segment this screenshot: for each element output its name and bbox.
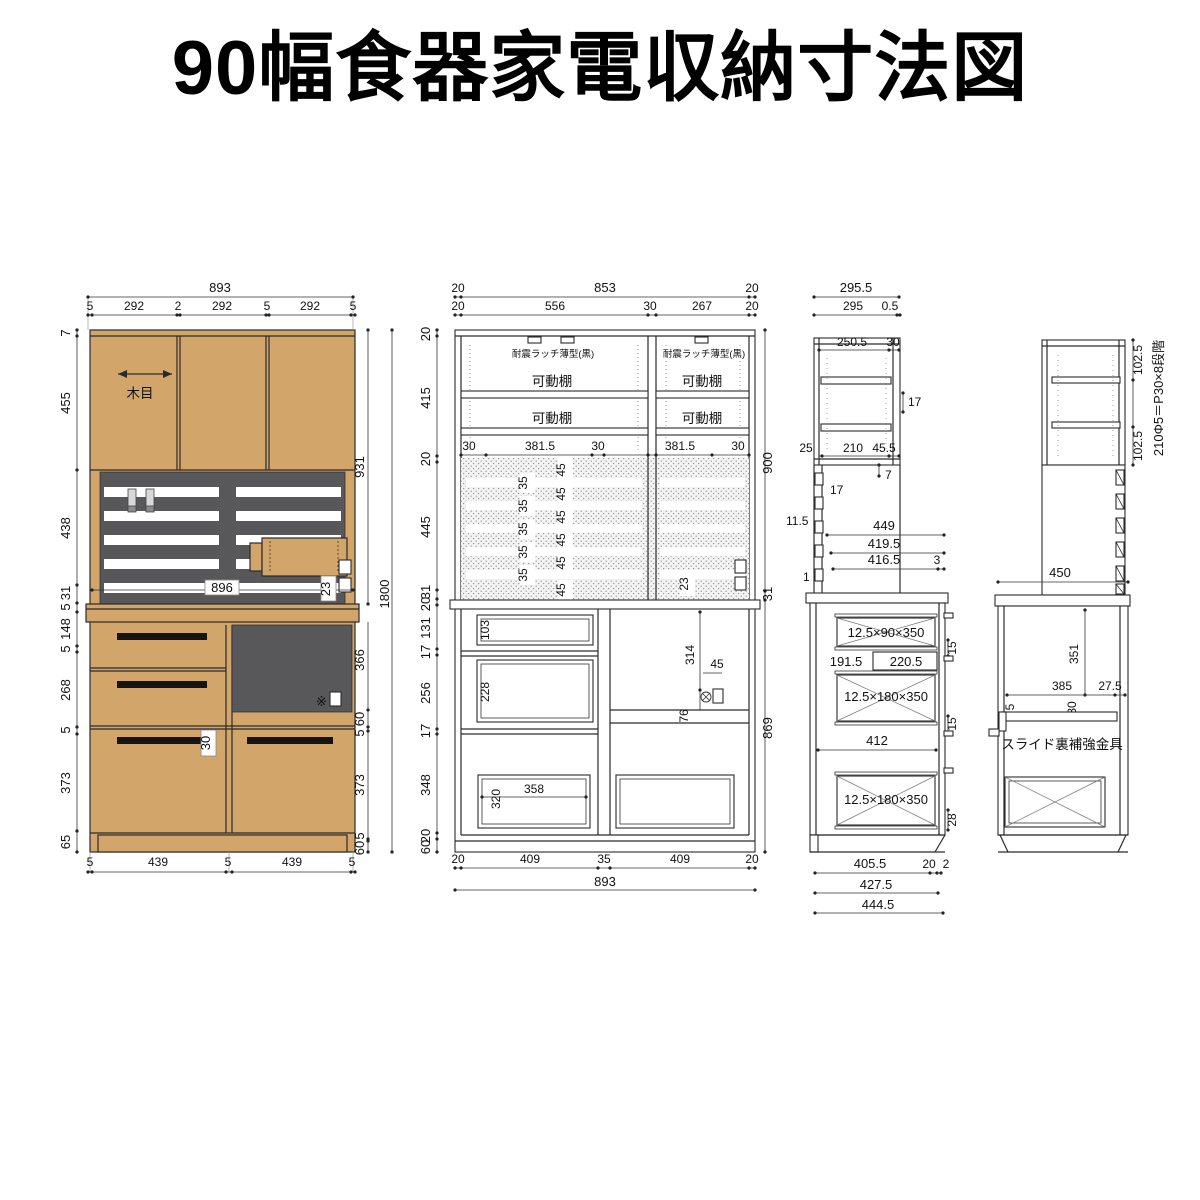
dim-label: 20 bbox=[451, 281, 465, 295]
dim-label: 295.5 bbox=[840, 280, 873, 295]
dim-label: 45 bbox=[554, 583, 568, 597]
dim-label: 292 bbox=[300, 299, 320, 313]
slide-rail bbox=[1000, 712, 1117, 721]
dim-label: 45 bbox=[554, 556, 568, 570]
latch bbox=[695, 337, 708, 343]
latch bbox=[561, 337, 574, 343]
rail-hook bbox=[999, 712, 1006, 731]
dim-label: 385 bbox=[1052, 679, 1072, 693]
adjustable-shelf bbox=[656, 391, 749, 398]
dim-label: 131 bbox=[418, 617, 433, 639]
dim-label: 228 bbox=[478, 682, 492, 702]
sliding-tray-tab bbox=[250, 543, 262, 571]
dim-label: 20 bbox=[418, 452, 433, 466]
dim-label: 931 bbox=[352, 456, 367, 478]
dim-label: 25 bbox=[799, 441, 813, 455]
dim-label: 102.5 bbox=[1131, 345, 1145, 375]
dim-label: 5 bbox=[352, 729, 367, 736]
dim-label: 20 bbox=[745, 281, 759, 295]
dim-label: 17 bbox=[418, 724, 433, 738]
dim-label: 5 bbox=[350, 299, 357, 313]
dim-label: 373 bbox=[58, 772, 73, 794]
dim-label: 381.5 bbox=[525, 439, 555, 453]
sliding-tray bbox=[262, 538, 347, 576]
drawer-size-label: 12.5×180×350 bbox=[844, 689, 928, 704]
dim-label: 23 bbox=[677, 577, 691, 591]
dim-label: 5 bbox=[349, 855, 356, 869]
dim-label: 27.5 bbox=[1098, 679, 1122, 693]
shelf bbox=[821, 424, 891, 431]
hinge bbox=[815, 497, 823, 509]
dim-label: 416.5 bbox=[868, 552, 901, 567]
outlet bbox=[330, 692, 341, 706]
shelf bbox=[1052, 377, 1120, 383]
dim-label: 23 bbox=[318, 582, 333, 596]
dim-label: 30 bbox=[462, 439, 476, 453]
dim-label: 896 bbox=[211, 580, 233, 595]
dim-label: 5 bbox=[352, 832, 367, 839]
dim-label: 45 bbox=[554, 510, 568, 524]
dim-label: 35 bbox=[516, 568, 530, 582]
dim-label: 35 bbox=[516, 545, 530, 559]
drawer-size-label: 12.5×180×350 bbox=[844, 792, 928, 807]
dim-label: 438 bbox=[58, 517, 73, 539]
latch bbox=[528, 337, 541, 343]
dim-label: 439 bbox=[148, 855, 168, 869]
dim-label: 314 bbox=[683, 645, 697, 665]
outlet bbox=[339, 560, 351, 574]
hinge bbox=[815, 521, 823, 533]
dim-label: 148 bbox=[58, 618, 73, 640]
dim-label: 5 bbox=[264, 299, 271, 313]
dim-label: 20 bbox=[418, 597, 433, 611]
dim-label: 17 bbox=[418, 645, 433, 659]
dim-label: 30 bbox=[731, 439, 745, 453]
dim-label: 893 bbox=[209, 280, 231, 295]
dim-label: 20 bbox=[745, 852, 759, 866]
shelf-label: 可動棚 bbox=[532, 411, 573, 426]
dim-label: 250.5 bbox=[837, 335, 867, 349]
dim-label: 427.5 bbox=[860, 877, 893, 892]
dim-label: 191.5 bbox=[830, 654, 863, 669]
wood-grain-label: 木目 bbox=[127, 386, 154, 401]
dim-label: 295 bbox=[843, 299, 863, 313]
dim-label: 31 bbox=[58, 586, 73, 600]
shelf bbox=[821, 377, 891, 384]
dim-label: 5 bbox=[87, 299, 94, 313]
dim-label: 853 bbox=[594, 280, 616, 295]
dim-label: 220.5 bbox=[890, 654, 923, 669]
dim-label: 20 bbox=[451, 299, 465, 313]
handle-profile bbox=[944, 613, 953, 618]
dim-label: 45 bbox=[554, 533, 568, 547]
dim-label: 45 bbox=[710, 657, 724, 671]
dim-label: 893 bbox=[594, 874, 616, 889]
dim-label: 409 bbox=[670, 852, 690, 866]
dim-label: 419.5 bbox=[868, 536, 901, 551]
dim-label: 5 bbox=[87, 855, 94, 869]
dim-label: 381.5 bbox=[665, 439, 695, 453]
dim-label: 20 bbox=[922, 857, 936, 871]
outlet bbox=[713, 689, 723, 703]
asterisk-mark: ※ bbox=[316, 694, 327, 709]
dim-label: 292 bbox=[212, 299, 232, 313]
dim-label: 351 bbox=[1067, 644, 1081, 664]
dim-label: 45.5 bbox=[872, 441, 896, 455]
dim-label: 292 bbox=[124, 299, 144, 313]
dim-label: 7 bbox=[885, 468, 892, 482]
dim-label: 412 bbox=[866, 733, 888, 748]
dim-label: 556 bbox=[545, 299, 565, 313]
base-board bbox=[98, 835, 347, 852]
handle-profile bbox=[944, 768, 953, 773]
handle-profile bbox=[944, 656, 953, 661]
dim-label: 455 bbox=[58, 392, 73, 414]
dim-label: 445 bbox=[418, 516, 433, 538]
outlet bbox=[735, 577, 746, 590]
bracket-tab bbox=[989, 729, 999, 736]
drawer-handle bbox=[117, 681, 207, 688]
hinge bbox=[815, 569, 823, 581]
dim-label: 2 bbox=[175, 299, 182, 313]
dim-label: 31 bbox=[760, 587, 775, 601]
bracket-label: スライド裏補強金具 bbox=[1001, 737, 1123, 752]
dim-label: 439 bbox=[282, 855, 302, 869]
dim-label: 268 bbox=[58, 679, 73, 701]
drawer-handle bbox=[117, 633, 207, 640]
latch-label: 耐震ラッチ薄型(黒) bbox=[663, 348, 745, 360]
handle-profile bbox=[944, 731, 953, 736]
dim-label: 366 bbox=[352, 649, 367, 671]
dim-label: 373 bbox=[352, 774, 367, 796]
dim-label: 869 bbox=[760, 717, 775, 739]
dim-label: 15 bbox=[945, 641, 959, 655]
shelf-label: 可動棚 bbox=[532, 374, 573, 389]
dim-label: 20 bbox=[745, 299, 759, 313]
dim-label: 60 bbox=[352, 712, 367, 726]
dim-label: 2 bbox=[943, 857, 950, 871]
dim-label: 30 bbox=[886, 335, 900, 349]
door-handle bbox=[247, 737, 333, 744]
dim-label: 15 bbox=[945, 717, 959, 731]
adjustable-shelf bbox=[461, 391, 648, 398]
dim-label: 17 bbox=[908, 395, 922, 409]
dim-label: 7 bbox=[58, 329, 73, 336]
dim-label: 0.5 bbox=[882, 299, 899, 313]
shelf-label: 可動棚 bbox=[682, 374, 723, 389]
dim-label: 30 bbox=[643, 299, 657, 313]
front-view-drawing: 木目 896 23 bbox=[58, 280, 394, 874]
latch-label: 耐震ラッチ薄型(黒) bbox=[512, 348, 594, 360]
dim-label: 60 bbox=[418, 840, 433, 854]
dim-label: 30 bbox=[198, 736, 213, 750]
dim-label: 5 bbox=[58, 726, 73, 733]
dim-label: 102.5 bbox=[1131, 431, 1145, 461]
countertop bbox=[86, 604, 359, 622]
dim-label: 11.5 bbox=[786, 514, 809, 528]
countertop bbox=[450, 600, 760, 609]
dim-label: 35 bbox=[597, 852, 611, 866]
dim-label: 210 bbox=[843, 441, 863, 455]
rear-view-drawing: 102.5 102.5 210Φ5＝P30×8段階 450 351 bbox=[989, 338, 1166, 852]
outlet bbox=[735, 560, 746, 573]
dim-label: 30 bbox=[591, 439, 605, 453]
dimension-sheet: 90幅食器家電収納寸法図 木目 bbox=[0, 0, 1200, 1200]
dim-label: 409 bbox=[520, 852, 540, 866]
dim-label: 5 bbox=[1003, 703, 1017, 710]
hinge bbox=[815, 545, 823, 557]
dim-label: 65 bbox=[58, 835, 73, 849]
dim-label: 35 bbox=[516, 476, 530, 490]
dim-label: 415 bbox=[418, 387, 433, 409]
dim-label: 1800 bbox=[377, 580, 392, 609]
dimension-diagram: 木目 896 23 bbox=[0, 0, 1200, 1200]
adjustable-shelf bbox=[461, 428, 648, 435]
dim-label: 20 bbox=[451, 852, 465, 866]
dim-label: 45 bbox=[554, 463, 568, 477]
opening bbox=[477, 615, 593, 645]
dim-label: 405.5 bbox=[854, 856, 887, 871]
dim-label: 449 bbox=[873, 518, 895, 533]
countertop bbox=[995, 595, 1130, 606]
upper-cabinet bbox=[1042, 340, 1125, 465]
internal-view-drawing: 耐震ラッチ薄型(黒) 耐震ラッチ薄型(黒) 可動棚 可動棚 可動棚 可動棚 30… bbox=[418, 280, 775, 892]
adjustable-shelf bbox=[656, 428, 749, 435]
opening bbox=[616, 775, 734, 828]
opening bbox=[477, 660, 593, 722]
drawer-size-label: 12.5×90×350 bbox=[848, 625, 925, 640]
hinge bbox=[815, 473, 823, 485]
foot bbox=[810, 835, 818, 852]
dim-label: 900 bbox=[760, 452, 775, 474]
door-handle bbox=[117, 737, 205, 744]
countertop bbox=[806, 593, 948, 603]
dim-label: 358 bbox=[524, 782, 544, 796]
dim-label: 28 bbox=[945, 813, 959, 827]
dim-label: 35 bbox=[516, 499, 530, 513]
dim-label: 450 bbox=[1049, 565, 1071, 580]
shelf-label: 可動棚 bbox=[682, 411, 723, 426]
dim-label: 5 bbox=[225, 855, 232, 869]
dim-label: 20 bbox=[418, 327, 433, 341]
dim-label: 444.5 bbox=[862, 897, 895, 912]
dim-label: 5 bbox=[58, 645, 73, 652]
dim-label: 35 bbox=[516, 522, 530, 536]
dim-label: 3 bbox=[934, 553, 941, 567]
dim-label: 5 bbox=[58, 603, 73, 610]
dim-label: 267 bbox=[692, 299, 712, 313]
dim-label: 1 bbox=[803, 570, 810, 584]
dim-label: 45 bbox=[554, 487, 568, 501]
pitch-note: 210Φ5＝P30×8段階 bbox=[1151, 340, 1166, 456]
dim-label: 76 bbox=[677, 709, 691, 723]
dim-label: 60 bbox=[352, 841, 367, 855]
dim-label: 17 bbox=[830, 483, 844, 497]
dim-label: 256 bbox=[418, 682, 433, 704]
dim-label: 348 bbox=[418, 774, 433, 796]
side-view-drawing: 295.5 295 0.5 250.5 30 17 25 210 45.5 7 bbox=[786, 280, 959, 915]
dim-label: 103 bbox=[478, 620, 492, 640]
dim-label: 320 bbox=[489, 789, 503, 809]
shelf bbox=[1052, 422, 1120, 428]
